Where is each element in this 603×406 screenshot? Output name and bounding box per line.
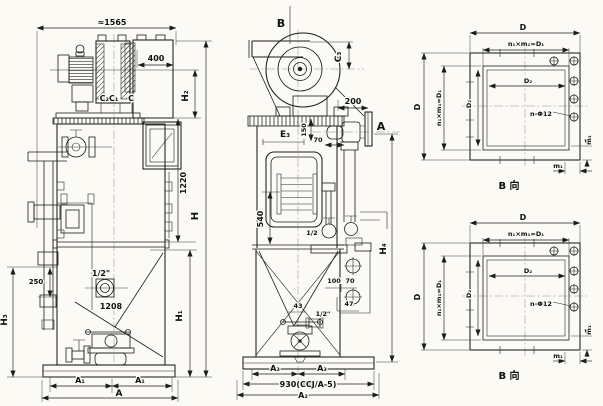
dim-a3-right: A₃ <box>317 364 327 373</box>
label-base-model: 930(CCJ/A-5) <box>280 380 337 389</box>
section-label-b: B <box>277 17 285 30</box>
dim-1220: 1220 <box>179 171 188 194</box>
dim-m1-horizontal-f2: m₁ <box>553 352 563 360</box>
dim-h2: H₂ <box>181 90 191 102</box>
label-half-inch-port: 1/2" <box>92 269 110 278</box>
dim-m1-horizontal-f1: m₁ <box>553 162 563 170</box>
dim-m1-vertical-f1: m₁ <box>585 135 593 145</box>
dim-bolt-row-left-f2: n₁×m₁=D₁ <box>435 280 443 316</box>
dim-overall-width: ≈1565 <box>98 18 127 27</box>
dim-d-top-f2: D <box>520 213 527 222</box>
dim-bolt-row-left-f1: n₁×m₁=D₁ <box>435 90 443 126</box>
dim-d-left-f1: D <box>413 103 422 110</box>
dim-d-left-f2: D <box>413 293 422 300</box>
dim-d2-left-f2: D₂ <box>465 290 473 298</box>
label-c2c1: C₂C₁ <box>100 94 119 103</box>
dim-250: 250 <box>29 278 44 286</box>
drawing-canvas: ≈1565 400 C₂C₁ C H₂ 1220 H H₁ H₃ 250 1/2… <box>0 0 603 406</box>
label-hole-spec-f2: n-Φ12 <box>530 300 552 308</box>
dim-h4: H₄ <box>379 243 389 255</box>
label-c: C <box>128 94 134 103</box>
dim-m1-vertical-f2: m₁ <box>585 325 593 335</box>
dim-a: A <box>116 389 123 399</box>
dim-70-lower: 70 <box>345 277 355 285</box>
dim-d2-horizontal-f2: D₂ <box>524 267 532 275</box>
technical-drawing-sheet: ≈1565 400 C₂C₁ C H₂ 1220 H H₁ H₃ 250 1/2… <box>0 0 603 406</box>
label-half-inch-drain: 1/2" <box>316 310 331 318</box>
dim-43: 43 <box>293 302 302 310</box>
label-hole-spec-f1: n-Φ12 <box>530 110 552 118</box>
dim-bolt-row-top-f2: n₁×m₁=D₁ <box>508 230 544 238</box>
dim-540: 540 <box>256 210 265 227</box>
dim-c3: C₃ <box>334 52 344 63</box>
dim-d2-left-f1: D₂ <box>465 100 473 108</box>
dim-fan-depth: 400 <box>148 54 165 63</box>
label-half-valve: 1/2 <box>306 229 317 237</box>
dim-47: 47 <box>344 300 353 308</box>
dim-bolt-row-top-f1: n₁×m₁=D₁ <box>508 40 544 48</box>
dim-h3: H₃ <box>0 314 10 326</box>
caption-b-view-f1: B 向 <box>498 179 519 192</box>
label-e3: E₃ <box>280 130 290 140</box>
dim-70-upper: 70 <box>313 136 323 144</box>
dim-h1: H₁ <box>175 310 185 322</box>
dim-150: 150 <box>300 123 308 137</box>
dim-a3-left: A₃ <box>270 364 280 373</box>
dim-h: H <box>190 212 201 220</box>
dim-d2-horizontal-f1: D₂ <box>524 77 532 85</box>
dim-a1-left: A₁ <box>75 376 85 385</box>
caption-b-view-f2: B 向 <box>498 369 519 382</box>
dim-d-top-f1: D <box>520 23 527 32</box>
dim-200: 200 <box>345 97 362 106</box>
dim-1208: 1208 <box>100 302 123 311</box>
dim-a2: A₂ <box>298 391 308 400</box>
section-label-a: A <box>377 120 386 133</box>
dim-100: 100 <box>327 277 341 285</box>
dim-a1-right: A₁ <box>135 376 145 385</box>
